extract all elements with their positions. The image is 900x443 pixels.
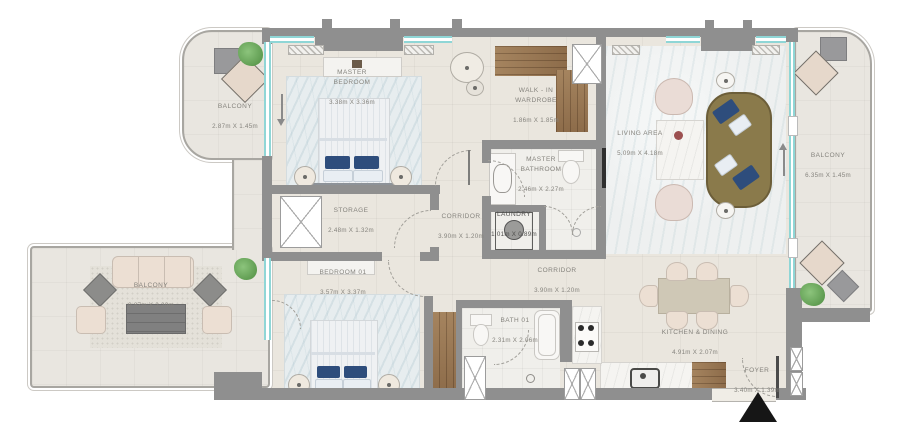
floor-plan: BALCONY 2.87m X 1.45m MASTER BEDROOM 3.3… bbox=[0, 0, 900, 443]
wall bbox=[322, 19, 332, 28]
entrance-marker bbox=[739, 392, 777, 422]
vent-grille bbox=[288, 45, 324, 55]
closet-wood bbox=[432, 312, 458, 392]
wall bbox=[560, 302, 572, 362]
balcony-table bbox=[820, 37, 847, 61]
armchair bbox=[655, 184, 693, 221]
wall bbox=[262, 156, 272, 188]
shaft-box bbox=[564, 368, 580, 400]
pillow bbox=[317, 366, 340, 378]
shaft-box bbox=[790, 372, 803, 396]
toilet-bowl bbox=[562, 160, 580, 184]
window bbox=[270, 36, 314, 43]
window bbox=[264, 42, 271, 156]
burner bbox=[578, 340, 584, 346]
outdoor-chair bbox=[76, 306, 106, 334]
room-label-master-bathroom: MASTER BATHROOM 2.46m X 2.27m bbox=[518, 145, 564, 205]
bed-fold bbox=[311, 352, 375, 355]
bathtub-inner bbox=[538, 314, 556, 356]
room-label-balcony-top-left: BALCONY 2.87m X 1.45m bbox=[212, 92, 258, 142]
arrow-down-icon bbox=[277, 119, 285, 126]
outdoor-chair bbox=[202, 306, 232, 334]
room-label-bath-01: BATH 01 2.31m X 2.06m bbox=[492, 306, 538, 356]
room-label-bedroom-01: BEDROOM 01 3.57m X 3.37m bbox=[319, 258, 366, 308]
toilet-bowl bbox=[473, 324, 489, 346]
room-label-storage: STORAGE 2.48m X 1.32m bbox=[328, 196, 374, 246]
tv-panel bbox=[602, 148, 606, 188]
room-label-balcony-bottom: BALCONY 9.87m X 2.20m bbox=[128, 271, 174, 321]
wall bbox=[262, 28, 796, 37]
window bbox=[756, 36, 786, 43]
bed-fold bbox=[319, 138, 387, 141]
wall bbox=[424, 296, 433, 392]
room-label-corridor-upper: CORRIDOR 3.90m X 1.20m bbox=[438, 202, 484, 252]
wall bbox=[705, 20, 714, 28]
vent-grille bbox=[752, 45, 780, 55]
dining-chair bbox=[696, 262, 718, 281]
arrow-up-icon bbox=[779, 143, 787, 150]
shaft-box bbox=[464, 356, 486, 400]
wall bbox=[262, 188, 272, 256]
pillow bbox=[325, 156, 350, 169]
wall bbox=[390, 19, 400, 28]
shaft-box bbox=[790, 347, 803, 371]
room-label-kitchen-dining: KITCHEN & DINING 4.91m X 2.07m bbox=[662, 318, 728, 368]
room-label-laundry: LAUNDRY 1.01m X 0.89m bbox=[491, 200, 537, 250]
shaft-box bbox=[280, 196, 322, 248]
wall bbox=[262, 185, 440, 194]
balcony-door bbox=[788, 238, 798, 258]
side-stool bbox=[716, 72, 735, 89]
vase bbox=[674, 131, 683, 140]
dining-chair bbox=[666, 262, 688, 281]
armchair bbox=[655, 78, 693, 115]
shaft-box bbox=[572, 44, 602, 84]
room-label-living-area: LIVING AREA 5.09m X 4.18m bbox=[617, 119, 663, 169]
direction-arrow-line bbox=[783, 150, 785, 176]
dining-chair bbox=[639, 285, 658, 307]
shaft-box bbox=[580, 368, 596, 400]
room-label-corridor-lower: CORRIDOR 3.90m X 1.20m bbox=[534, 256, 580, 306]
room-label-master-bedroom: MASTER BEDROOM 3.38m X 3.36m bbox=[329, 58, 375, 118]
pillow bbox=[344, 366, 367, 378]
vent-grille bbox=[404, 45, 434, 55]
pillow bbox=[353, 170, 383, 182]
sink-tap bbox=[640, 373, 646, 379]
dining-table bbox=[658, 278, 730, 314]
wall bbox=[452, 19, 462, 28]
wall bbox=[214, 372, 262, 400]
window bbox=[666, 36, 700, 43]
room-label-walk-in-wardrobe: WALK - IN WARDROBE 1.86m X 1.85m bbox=[513, 76, 559, 136]
coffee-table bbox=[656, 120, 704, 180]
wall bbox=[743, 20, 752, 28]
vent-grille bbox=[612, 45, 640, 55]
direction-arrow-line bbox=[281, 94, 283, 120]
wall bbox=[798, 308, 870, 322]
wall bbox=[701, 37, 755, 51]
pillow bbox=[354, 156, 379, 169]
side-stool bbox=[716, 202, 735, 219]
vanity-pouf bbox=[450, 52, 484, 83]
dining-chair bbox=[730, 285, 749, 307]
pillow bbox=[323, 170, 353, 182]
burner bbox=[578, 325, 584, 331]
room-label-balcony-right: BALCONY 6.35m X 1.45m bbox=[805, 141, 851, 191]
window bbox=[264, 258, 271, 340]
balcony-door bbox=[788, 116, 798, 136]
kitchen-sink bbox=[630, 368, 660, 389]
window bbox=[404, 36, 452, 43]
plant bbox=[234, 258, 257, 280]
burner bbox=[588, 325, 594, 331]
wall bbox=[786, 28, 798, 42]
shower-head bbox=[526, 374, 535, 383]
plant bbox=[238, 42, 263, 66]
plant bbox=[800, 283, 825, 306]
wall bbox=[456, 308, 462, 392]
wall bbox=[315, 37, 403, 51]
burner bbox=[588, 340, 594, 346]
door-leaf bbox=[468, 150, 470, 185]
vanity-stool bbox=[466, 80, 484, 96]
